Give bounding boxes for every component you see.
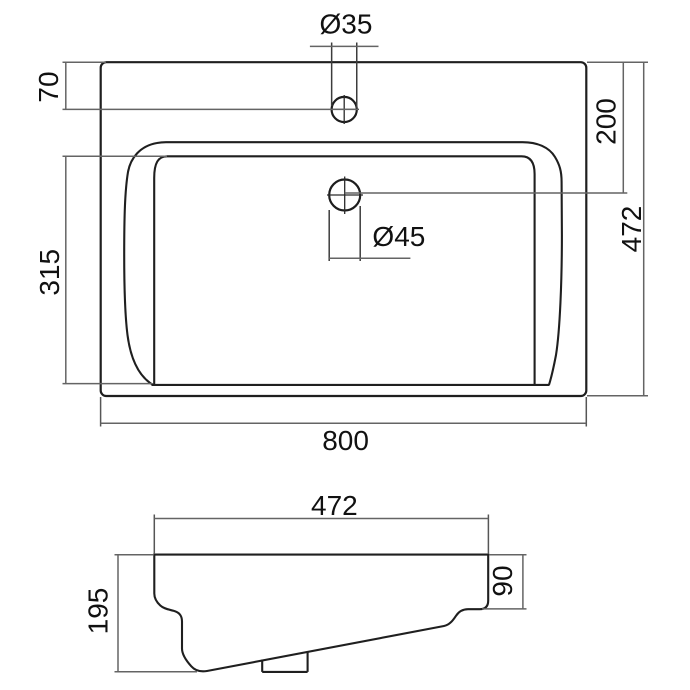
svg-text:472: 472 (616, 206, 647, 253)
svg-text:200: 200 (591, 98, 622, 145)
svg-text:90: 90 (487, 565, 518, 596)
svg-text:Ø35: Ø35 (320, 9, 373, 40)
svg-text:70: 70 (33, 71, 64, 102)
svg-text:800: 800 (322, 425, 369, 456)
svg-text:195: 195 (83, 588, 114, 635)
svg-text:Ø45: Ø45 (372, 221, 425, 252)
svg-text:315: 315 (34, 249, 65, 296)
svg-text:472: 472 (311, 490, 358, 521)
